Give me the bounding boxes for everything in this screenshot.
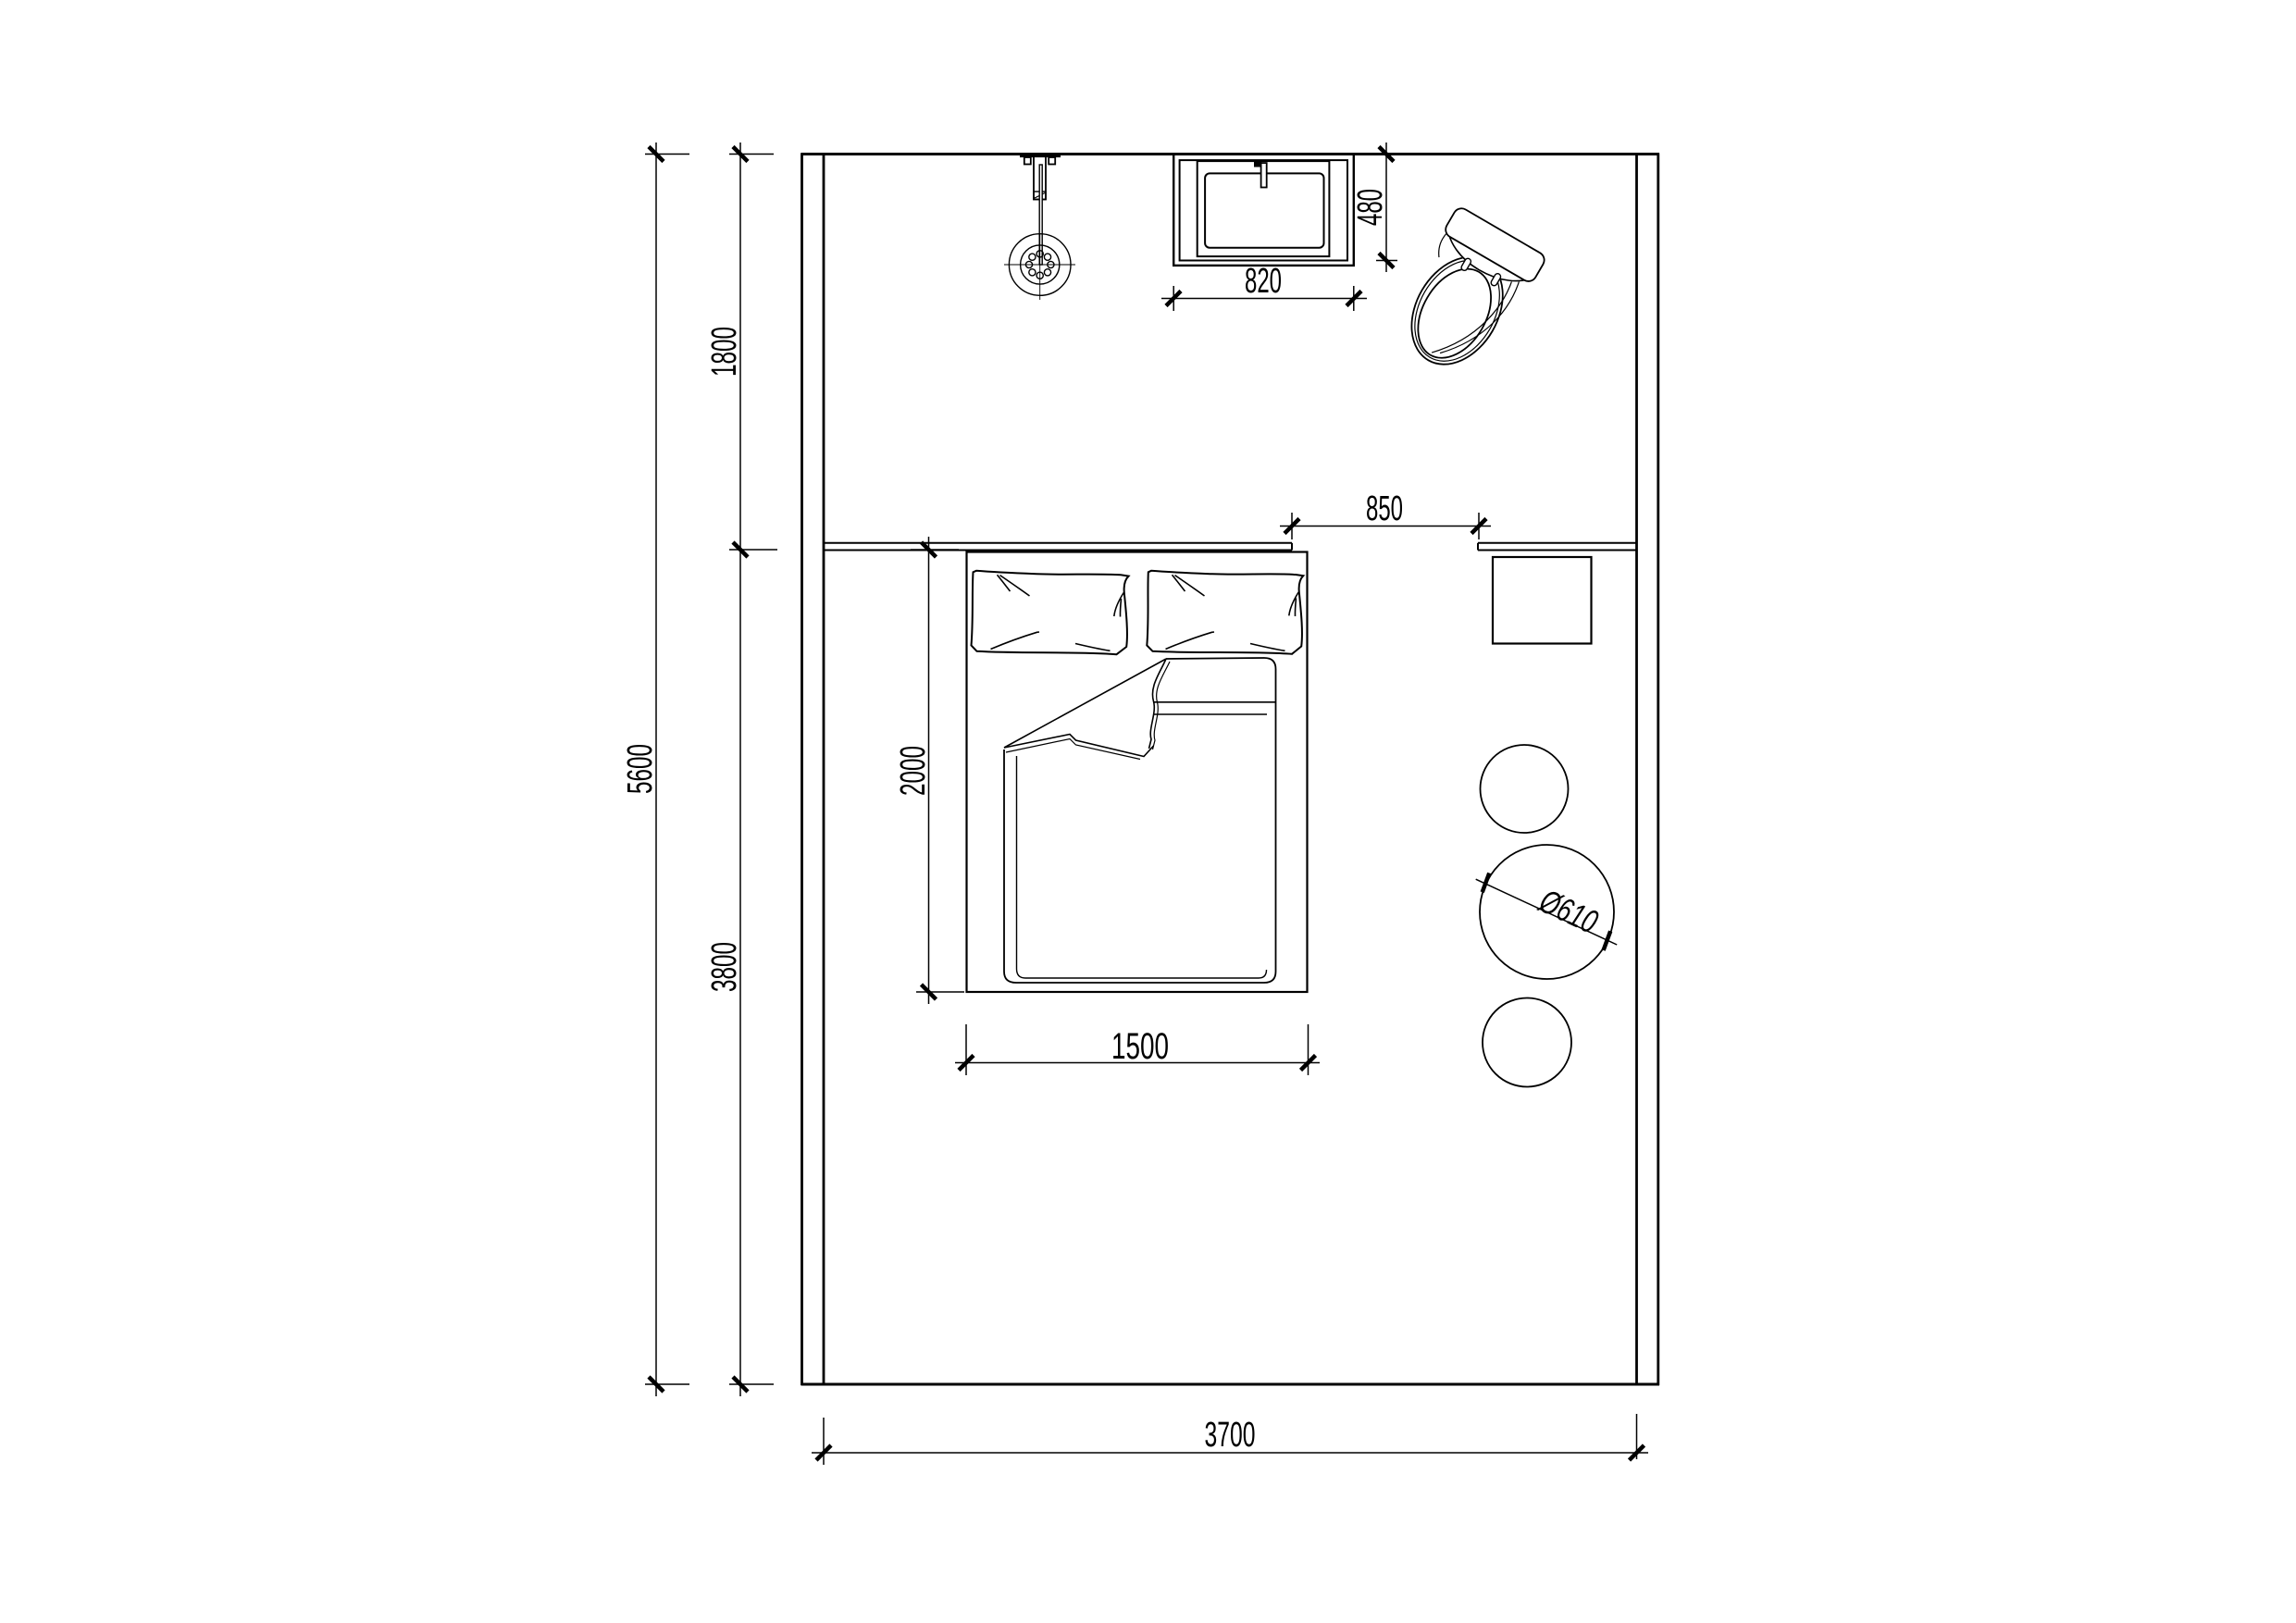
svg-text:3800: 3800: [705, 942, 744, 992]
svg-text:2000: 2000: [894, 746, 933, 796]
svg-text:1500: 1500: [1111, 1026, 1169, 1067]
svg-text:5600: 5600: [621, 744, 660, 794]
svg-text:480: 480: [1351, 189, 1390, 226]
svg-text:3700: 3700: [1205, 1416, 1256, 1455]
svg-text:1800: 1800: [705, 327, 744, 377]
svg-text:820: 820: [1245, 262, 1282, 301]
svg-text:850: 850: [1366, 489, 1403, 528]
